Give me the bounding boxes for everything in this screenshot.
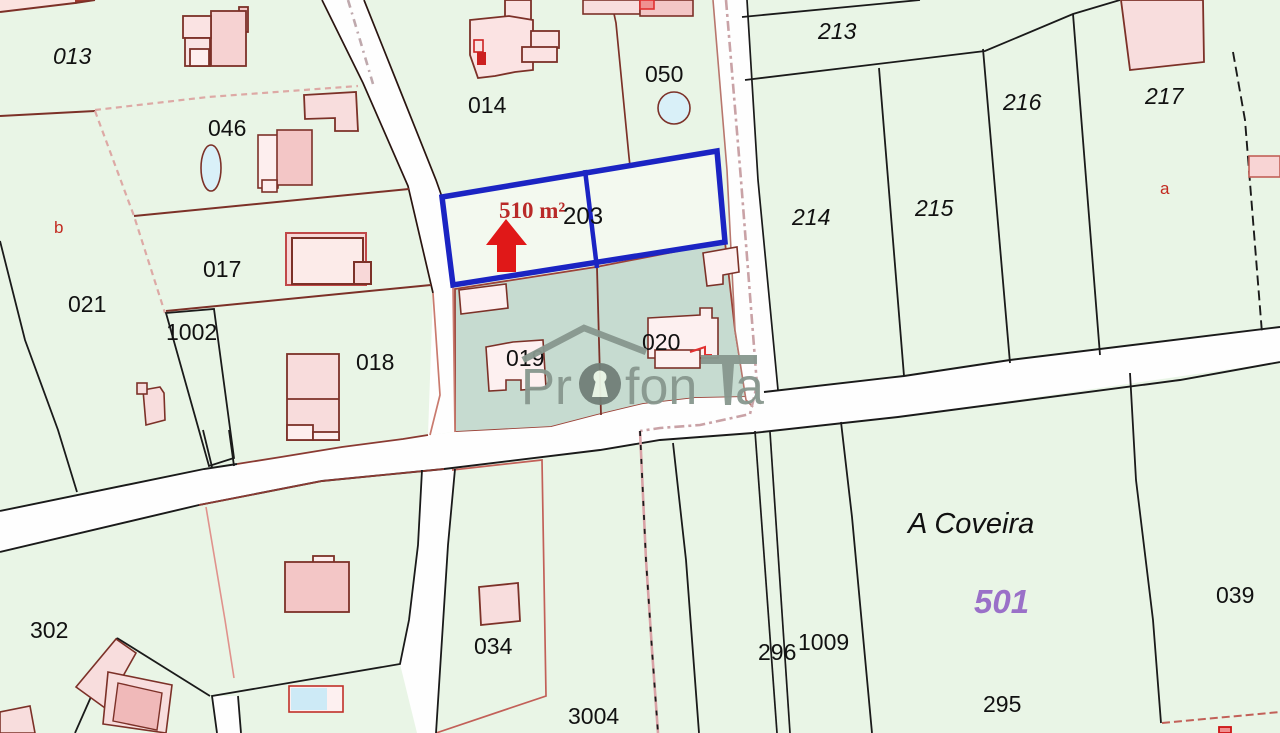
svg-text:296: 296	[758, 639, 796, 665]
svg-text:b: b	[54, 218, 63, 237]
svg-text:217: 217	[1144, 83, 1185, 109]
svg-text:510 m²: 510 m²	[499, 198, 565, 223]
svg-text:295: 295	[983, 691, 1021, 717]
svg-text:014: 014	[468, 92, 507, 118]
svg-text:Pr: Pr	[521, 358, 572, 415]
svg-text:a: a	[1160, 179, 1170, 198]
svg-text:1009: 1009	[798, 629, 849, 655]
svg-text:215: 215	[914, 195, 954, 221]
svg-text:214: 214	[791, 204, 830, 230]
svg-text:1002: 1002	[166, 319, 217, 345]
svg-text:050: 050	[645, 61, 683, 87]
svg-text:046: 046	[208, 115, 246, 141]
svg-text:213: 213	[817, 18, 857, 44]
svg-text:018: 018	[356, 349, 394, 375]
svg-text:021: 021	[68, 291, 106, 317]
svg-text:3004: 3004	[568, 703, 619, 729]
svg-text:034: 034	[474, 633, 513, 659]
svg-text:017: 017	[203, 256, 241, 282]
svg-text:a: a	[735, 358, 764, 416]
svg-text:020: 020	[642, 329, 680, 355]
svg-text:039: 039	[1216, 582, 1254, 608]
svg-text:203: 203	[563, 203, 603, 230]
svg-text:302: 302	[30, 617, 68, 643]
svg-text:501: 501	[974, 583, 1029, 620]
svg-text:A Coveira: A Coveira	[906, 508, 1034, 540]
svg-text:216: 216	[1002, 89, 1042, 115]
svg-text:013: 013	[53, 43, 92, 69]
svg-text:fon: fon	[625, 358, 697, 416]
